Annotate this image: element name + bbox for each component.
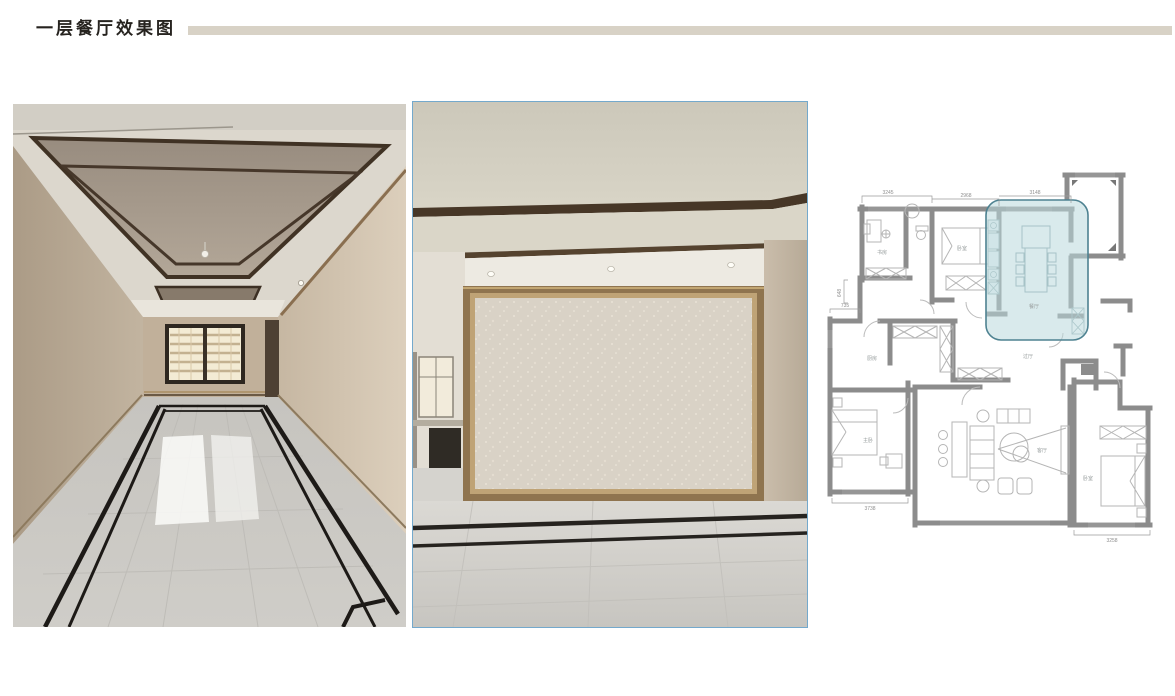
room-label-master-bedroom: 主卧 <box>863 437 873 444</box>
dining-room-highlight <box>986 200 1088 340</box>
plan-windows <box>828 173 1135 527</box>
kitchen-glimpse <box>413 252 465 502</box>
room-label-dining: 餐厅 <box>1029 303 1039 310</box>
dining-room-photo-1 <box>13 104 406 627</box>
dimension-label: 3258 <box>1106 538 1117 544</box>
window <box>165 324 245 384</box>
room-label-kitchen: 厨房 <box>867 355 877 362</box>
floor-plan: 3245 2968 3148 648 735 3738 3258 书房 卧室 餐… <box>820 158 1175 548</box>
page-title: 一层餐厅效果图 <box>36 14 176 39</box>
room-label-bedroom-right: 卧室 <box>1083 475 1093 482</box>
room-label-living: 客厅 <box>1037 447 1047 454</box>
room-label-bedroom-top: 卧室 <box>957 245 967 252</box>
dimension-label: 3738 <box>864 506 875 512</box>
dining-room-area <box>986 200 1088 340</box>
dimension-label: 3245 <box>882 190 893 196</box>
dimension-label: 735 <box>841 303 850 309</box>
room-label-hall: 过厅 <box>1023 353 1033 360</box>
photo1-scene <box>13 104 406 627</box>
dimension-label: 2968 <box>960 193 971 199</box>
dimension-label: 3148 <box>1029 190 1040 196</box>
photo2-scene <box>413 102 807 627</box>
dining-room-photo-2 <box>412 101 808 628</box>
title-accent-bar <box>188 26 1172 35</box>
feature-wall-panel <box>455 286 773 514</box>
dimension-label: 648 <box>837 289 843 298</box>
room-label-study: 书房 <box>877 249 887 256</box>
slide-canvas: 一层餐厅效果图 <box>0 0 1175 696</box>
